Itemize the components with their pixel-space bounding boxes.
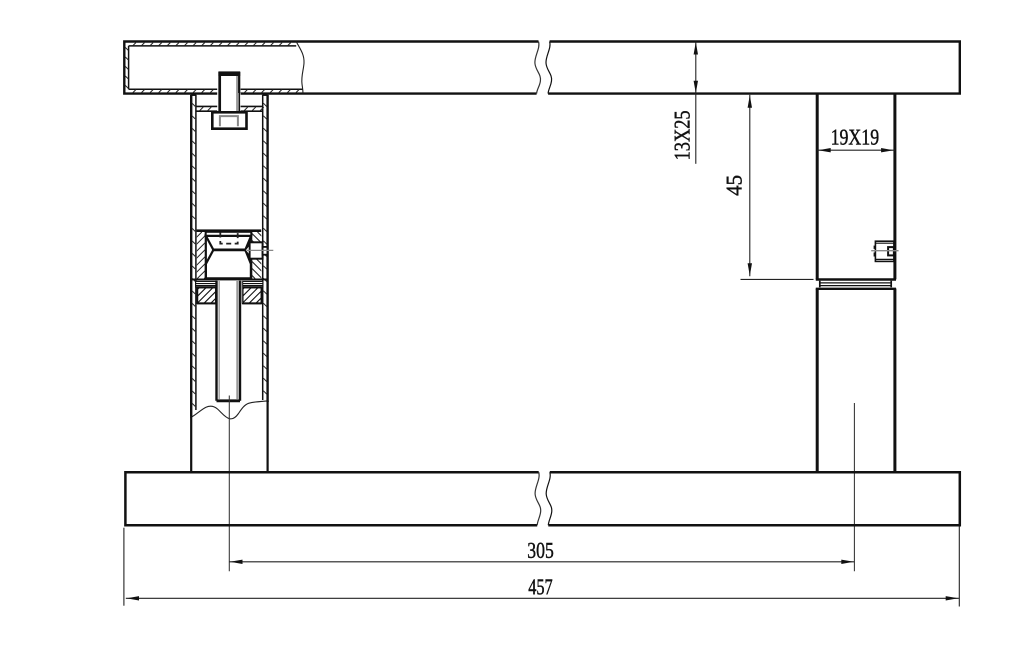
svg-text:305: 305 <box>527 538 554 563</box>
svg-text:457: 457 <box>528 574 553 599</box>
svg-text:19X19: 19X19 <box>831 124 880 149</box>
svg-text:45: 45 <box>721 175 746 196</box>
svg-text:13X25: 13X25 <box>669 110 694 160</box>
